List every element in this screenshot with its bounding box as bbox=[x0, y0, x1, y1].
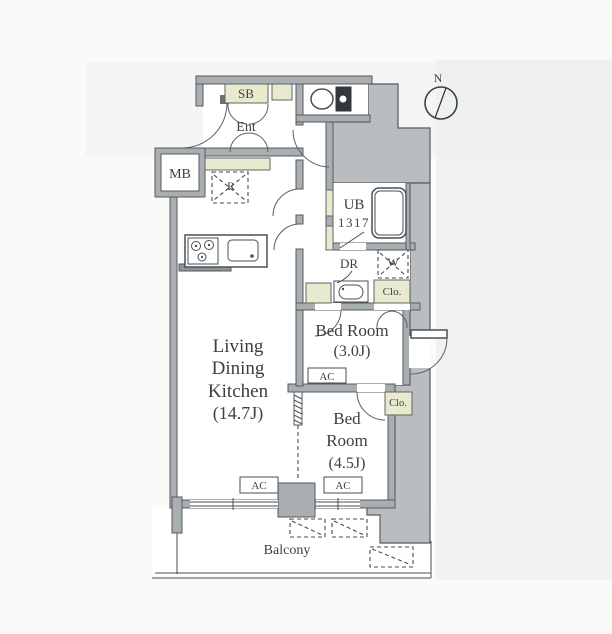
entry-cabinet bbox=[272, 84, 292, 100]
hall-door-panel bbox=[326, 190, 333, 216]
floor-plan-page: N SB Ent MB R UB 1317 DR W Clo. Clo. Bed… bbox=[0, 0, 612, 634]
washer-label: W bbox=[387, 255, 399, 269]
balcony-label: Balcony bbox=[264, 543, 311, 558]
bathtub bbox=[372, 188, 406, 238]
bedroom45-name-line2: Room bbox=[326, 431, 368, 450]
toilet-button bbox=[340, 96, 347, 103]
ldk-name-line3: Kitchen bbox=[208, 381, 269, 402]
toilet-bowl bbox=[311, 89, 333, 109]
powder-room-label: DR bbox=[340, 256, 358, 271]
meter-box-label: MB bbox=[169, 167, 191, 182]
closet-label: Clo. bbox=[389, 398, 407, 409]
ldk-size: (14.7J) bbox=[213, 403, 264, 424]
exterior-door-leaf bbox=[411, 330, 447, 338]
shoe-box-label: SB bbox=[238, 86, 254, 101]
entrance-label: Ent bbox=[236, 120, 256, 135]
closet-label: Clo. bbox=[383, 286, 402, 298]
powder-cabinet bbox=[306, 283, 331, 303]
ldk-name-line2: Dining bbox=[212, 358, 265, 379]
hall-door-panel bbox=[326, 226, 333, 250]
bedroom45-name-line1: Bed bbox=[333, 409, 361, 428]
ac-label: AC bbox=[251, 480, 266, 492]
refrigerator-label: R bbox=[227, 179, 235, 193]
ac-label: AC bbox=[319, 371, 334, 383]
ldk-name-line1: Living bbox=[213, 336, 264, 357]
unit-bath-label: UB bbox=[344, 197, 365, 213]
compass-north-label: N bbox=[434, 71, 443, 85]
bedroom45-size: (4.5J) bbox=[329, 455, 366, 472]
kitchen-storage-strip bbox=[205, 158, 270, 170]
bedroom3-size: (3.0J) bbox=[334, 343, 371, 360]
floor-plan-drawing: N SB Ent MB R UB 1317 DR W Clo. Clo. Bed… bbox=[0, 0, 612, 634]
ac-label: AC bbox=[335, 480, 350, 492]
unit-bath-size: 1317 bbox=[338, 215, 370, 230]
bedroom3-name: Bed Room bbox=[315, 321, 388, 340]
